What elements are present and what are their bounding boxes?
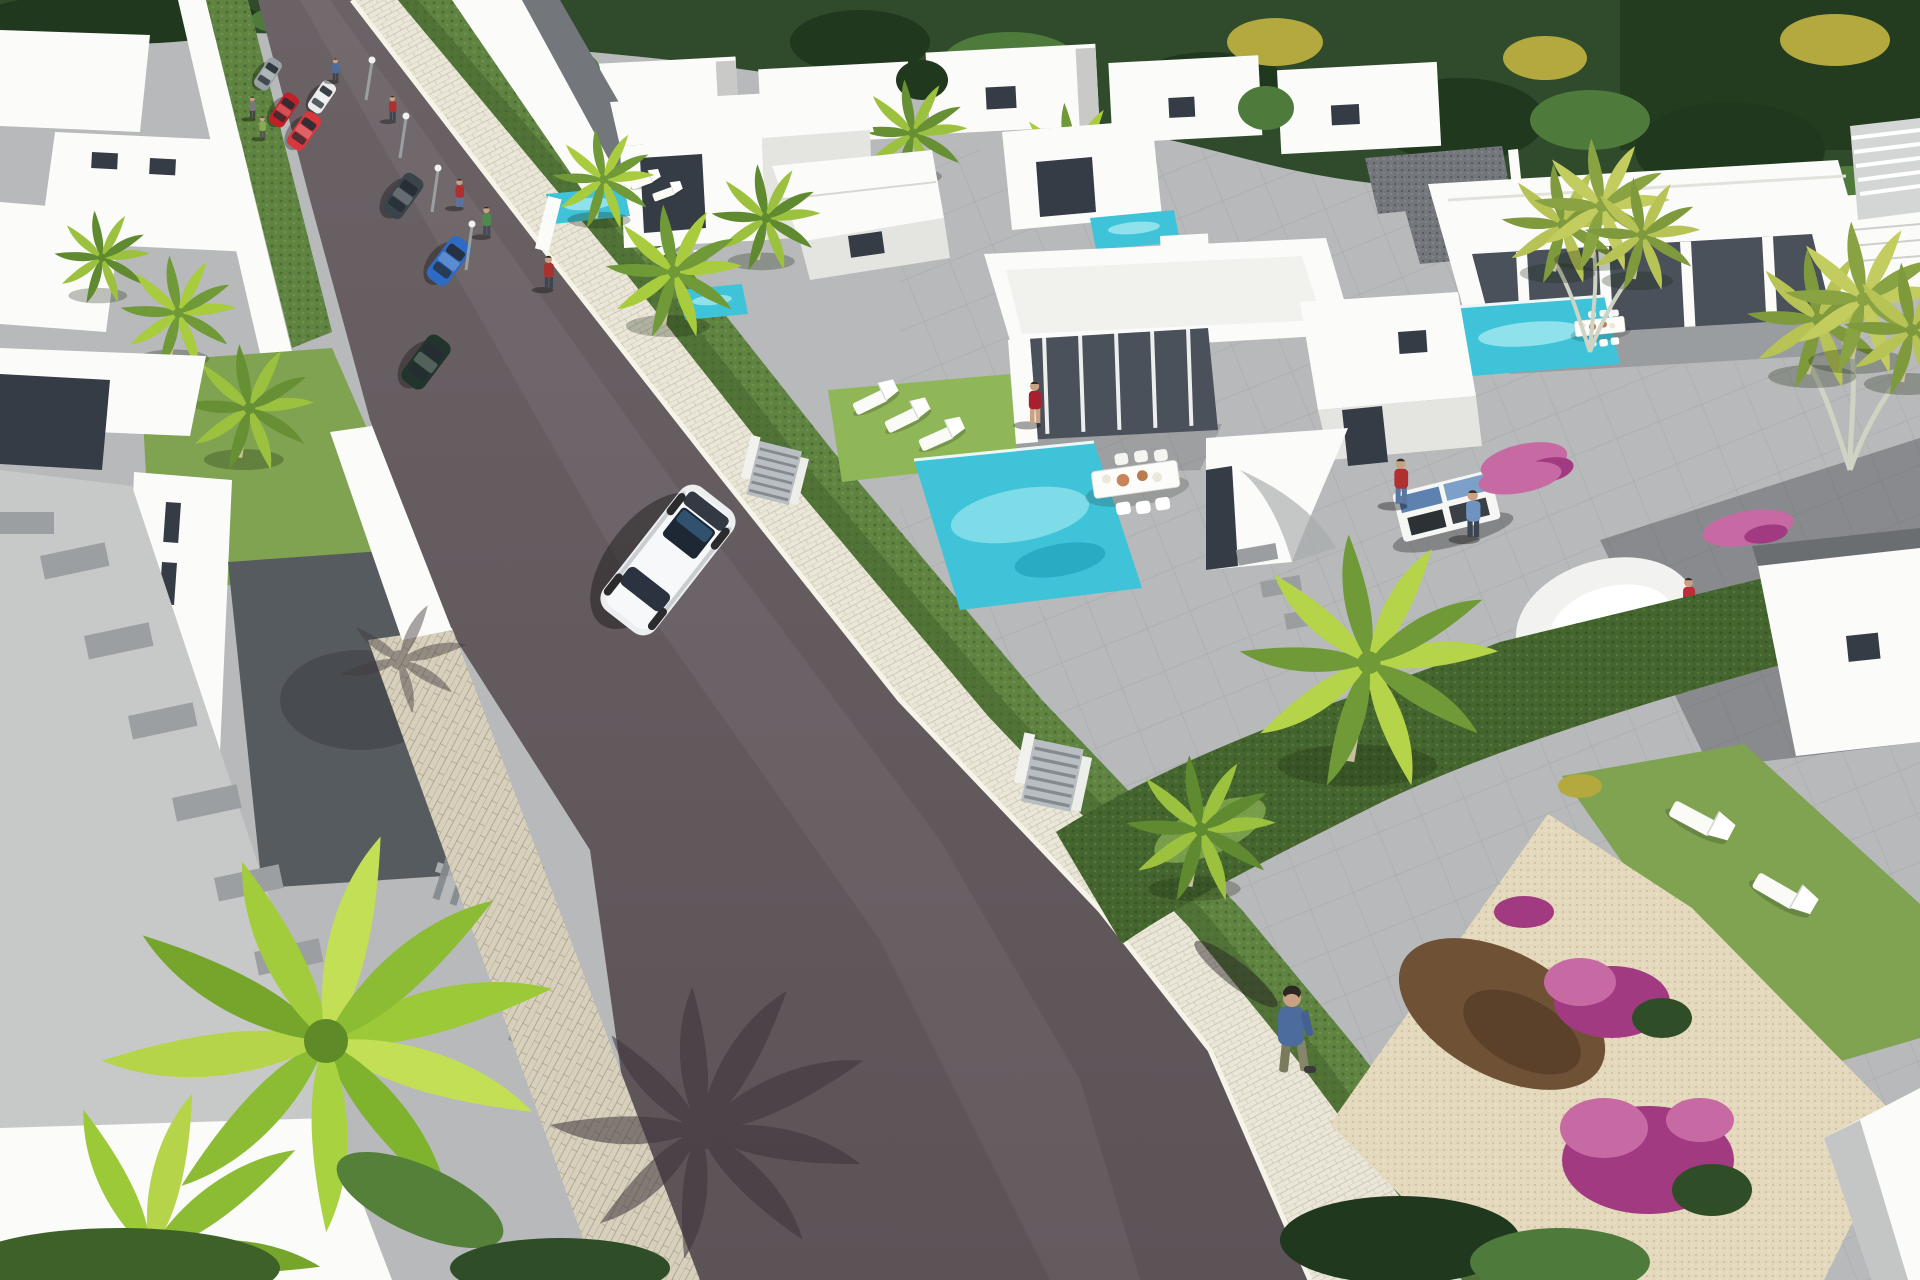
white-slat-fence xyxy=(1850,118,1920,220)
scene-svg xyxy=(0,0,1920,1280)
yellow-tree xyxy=(1780,14,1890,66)
yellow-tree xyxy=(1503,36,1587,80)
yellow-plant xyxy=(1558,774,1602,798)
render-canvas xyxy=(0,0,1920,1280)
